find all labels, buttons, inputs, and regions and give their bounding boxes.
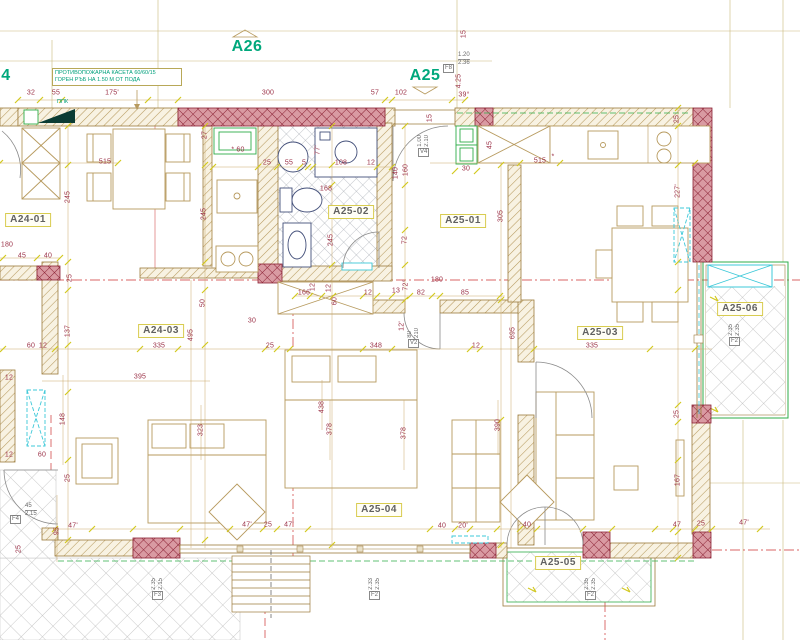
wardrobe bbox=[22, 128, 60, 199]
dining-table-a24 bbox=[87, 129, 190, 209]
plan-drawing bbox=[0, 0, 800, 640]
kitchen-a25 bbox=[478, 126, 710, 163]
shoe-cabinet bbox=[456, 126, 477, 164]
ppk-label: ППК bbox=[57, 99, 68, 105]
a25-marker bbox=[413, 87, 437, 94]
kitchen-a24 bbox=[212, 126, 258, 272]
note-line-1: ПРОТИВОПОЖАРНА КАСЕТА 60/60/15 bbox=[55, 70, 179, 77]
stairs bbox=[232, 550, 310, 618]
fire-cabinet-note: ПРОТИВОПОЖАРНА КАСЕТА 60/60/15 ГОРЕН РЪБ… bbox=[52, 68, 182, 86]
bedroom-a24-03 bbox=[76, 420, 266, 540]
bedroom-a25-04 bbox=[278, 282, 500, 522]
dining-table-a25 bbox=[596, 206, 688, 322]
floor-plan: A26A254 A24-01A24-03A25-01A25-02A25-03A2… bbox=[0, 0, 800, 640]
balcony-a25-06 bbox=[703, 262, 788, 418]
note-line-2: ГОРЕН РЪБ НА 1.50 М ОТ ПОДА bbox=[55, 77, 179, 84]
